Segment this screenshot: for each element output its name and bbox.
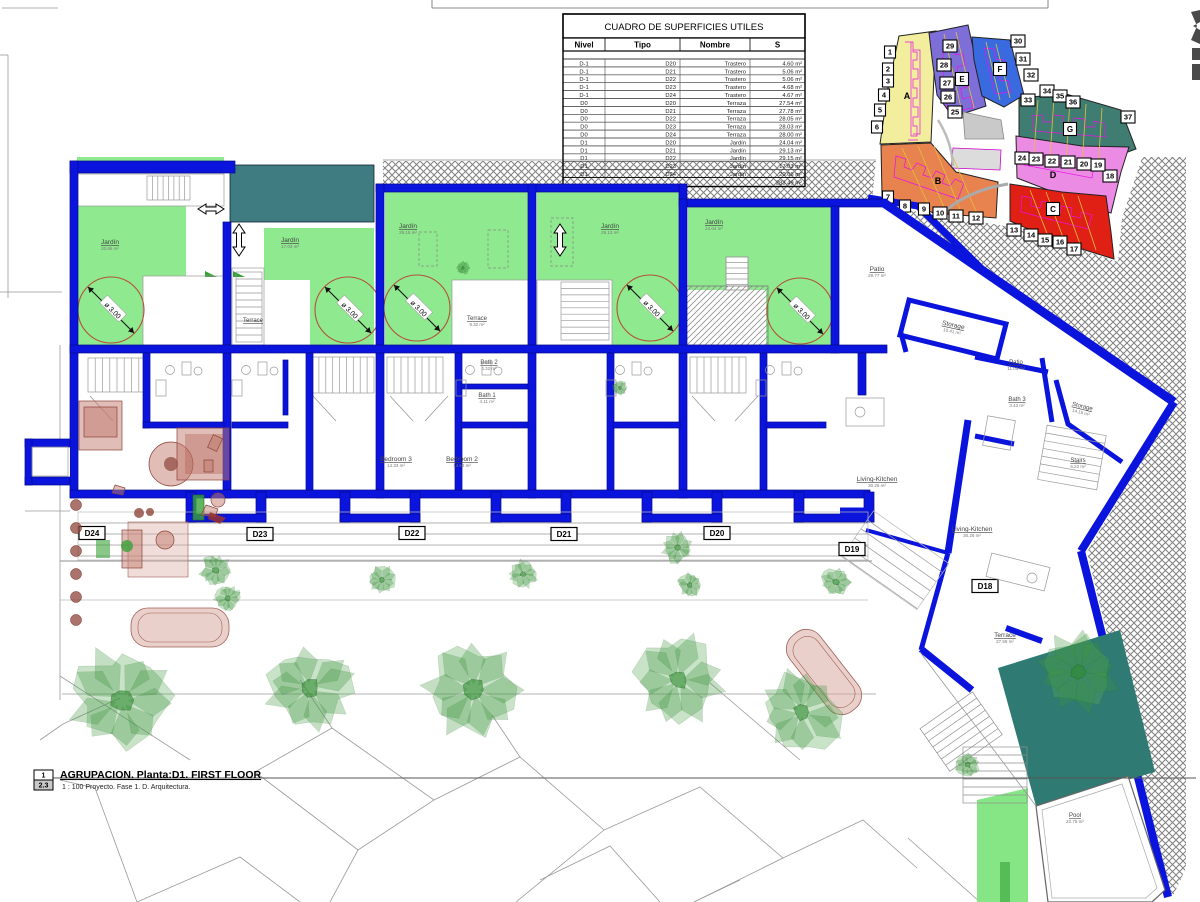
svg-text:30.25 m²: 30.25 m²	[868, 483, 886, 488]
svg-text:Jardín: Jardín	[705, 219, 723, 226]
svg-text:C: C	[1050, 205, 1056, 214]
svg-text:29.13 m²: 29.13 m²	[779, 148, 802, 154]
svg-text:1 : 100 Proyecto. Fase 1. D. A: 1 : 100 Proyecto. Fase 1. D. Arquitectur…	[62, 784, 190, 791]
svg-text:D20: D20	[665, 101, 676, 107]
svg-text:D20: D20	[710, 529, 725, 538]
svg-text:11: 11	[952, 212, 960, 221]
svg-text:29.15 m²: 29.15 m²	[399, 230, 417, 235]
svg-text:Terraza: Terraza	[727, 125, 747, 131]
svg-text:Living-Kitchen: Living-Kitchen	[952, 526, 993, 533]
svg-text:2: 2	[886, 65, 890, 74]
svg-text:14: 14	[1027, 231, 1036, 240]
svg-text:Patio: Patio	[870, 266, 885, 273]
svg-text:D23: D23	[665, 85, 676, 91]
svg-text:AGRUPACION. Planta:D1. FIRST F: AGRUPACION. Planta:D1. FIRST FLOOR	[60, 769, 261, 781]
svg-text:27.54 m²: 27.54 m²	[779, 101, 802, 107]
svg-text:D0: D0	[580, 125, 587, 131]
svg-text:17.03 m²: 17.03 m²	[281, 244, 299, 249]
svg-text:24.04 m²: 24.04 m²	[779, 140, 802, 146]
svg-text:D1: D1	[580, 148, 587, 154]
svg-text:Bedroom 2: Bedroom 2	[446, 456, 478, 463]
svg-text:2.3: 2.3	[39, 783, 49, 790]
svg-text:27: 27	[943, 79, 951, 88]
svg-text:Jardín: Jardín	[399, 223, 417, 230]
svg-text:Tipo: Tipo	[634, 41, 651, 50]
svg-text:D22: D22	[405, 529, 420, 538]
svg-text:34: 34	[1043, 87, 1052, 96]
svg-text:Trastero: Trastero	[725, 77, 746, 83]
svg-text:F: F	[998, 65, 1003, 74]
svg-text:D: D	[1050, 170, 1057, 180]
svg-text:Terraza: Terraza	[727, 109, 747, 115]
svg-text:G: G	[1067, 125, 1073, 134]
svg-text:4.11 m²: 4.11 m²	[480, 399, 495, 404]
svg-text:D1: D1	[580, 156, 587, 162]
svg-text:15: 15	[1041, 236, 1049, 245]
svg-text:24: 24	[1018, 154, 1027, 163]
svg-text:37: 37	[1124, 113, 1132, 122]
svg-text:Trastero: Trastero	[725, 69, 746, 75]
svg-text:D22: D22	[665, 156, 676, 162]
svg-text:26: 26	[944, 93, 952, 102]
svg-text:D24: D24	[85, 529, 100, 538]
svg-text:Trastero: Trastero	[725, 85, 746, 91]
svg-text:D21: D21	[665, 148, 676, 154]
svg-text:Jardín: Jardín	[730, 140, 746, 146]
svg-text:CUADRO DE SUPERFICIES UTILES: CUADRO DE SUPERFICIES UTILES	[605, 22, 764, 33]
svg-text:5: 5	[878, 106, 882, 115]
svg-text:6: 6	[875, 123, 879, 132]
svg-text:19: 19	[1094, 161, 1102, 170]
svg-text:29.77 m²: 29.77 m²	[868, 273, 886, 278]
svg-text:14.33 m²: 14.33 m²	[387, 463, 405, 468]
svg-text:D24: D24	[665, 133, 676, 139]
svg-text:28.00 m²: 28.00 m²	[779, 133, 802, 139]
svg-text:27.59 m²: 27.59 m²	[996, 639, 1014, 644]
svg-text:D-1: D-1	[579, 93, 588, 99]
svg-text:25: 25	[951, 108, 959, 117]
svg-text:D-1: D-1	[579, 85, 588, 91]
svg-text:20.66 m²: 20.66 m²	[101, 246, 119, 251]
svg-text:1: 1	[42, 773, 46, 780]
svg-text:D1: D1	[580, 164, 587, 170]
svg-text:Jardín: Jardín	[281, 237, 299, 244]
svg-text:A: A	[904, 91, 911, 101]
svg-text:27.78 m²: 27.78 m²	[779, 109, 802, 115]
svg-text:1: 1	[888, 48, 892, 57]
svg-text:Jardín: Jardín	[730, 164, 746, 170]
svg-text:4.68 m²: 4.68 m²	[782, 85, 802, 91]
svg-text:16: 16	[1056, 238, 1064, 247]
svg-text:8: 8	[903, 202, 907, 211]
svg-text:Jardín: Jardín	[730, 156, 746, 162]
svg-text:Terrace: Terrace	[243, 318, 264, 324]
svg-text:D21: D21	[665, 109, 676, 115]
svg-text:S: S	[775, 41, 781, 50]
svg-text:10: 10	[936, 209, 944, 218]
svg-text:Terrace: Terrace	[994, 632, 1016, 639]
svg-text:31: 31	[1019, 55, 1027, 64]
svg-text:22.75 m²: 22.75 m²	[1066, 819, 1084, 824]
svg-text:B: B	[935, 176, 942, 186]
svg-text:D23: D23	[665, 125, 676, 131]
svg-text:D24: D24	[665, 93, 676, 99]
svg-text:35: 35	[1056, 92, 1064, 101]
svg-text:11.05 m²: 11.05 m²	[1007, 366, 1025, 371]
svg-text:29.13 m²: 29.13 m²	[601, 230, 619, 235]
svg-text:Nivel: Nivel	[574, 41, 593, 50]
svg-text:28: 28	[940, 61, 948, 70]
svg-text:20: 20	[1080, 160, 1088, 169]
svg-text:4.67 m²: 4.67 m²	[782, 93, 802, 99]
svg-text:D0: D0	[580, 117, 587, 123]
svg-text:Living-Kitchen: Living-Kitchen	[857, 476, 898, 483]
svg-text:D0: D0	[580, 109, 587, 115]
svg-text:E: E	[959, 75, 965, 84]
svg-text:D18: D18	[978, 582, 993, 591]
svg-text:D22: D22	[665, 77, 676, 83]
svg-text:18: 18	[1106, 172, 1114, 181]
svg-text:23: 23	[1032, 155, 1040, 164]
svg-text:Trastero: Trastero	[725, 61, 746, 67]
svg-text:D21: D21	[557, 530, 572, 539]
svg-text:28.05 m²: 28.05 m²	[779, 117, 802, 123]
svg-text:5.06 m²: 5.06 m²	[782, 77, 802, 83]
svg-text:Jardín: Jardín	[730, 148, 746, 154]
svg-text:30: 30	[1014, 37, 1022, 46]
svg-text:D19: D19	[845, 545, 860, 554]
svg-text:Bedroom 3: Bedroom 3	[380, 456, 412, 463]
svg-text:12: 12	[972, 214, 980, 223]
svg-text:D20: D20	[665, 61, 676, 67]
svg-text:D22: D22	[665, 117, 676, 123]
svg-text:3.43 m²: 3.43 m²	[1009, 403, 1025, 408]
svg-text:Terraza: Terraza	[727, 117, 747, 123]
svg-text:22: 22	[1048, 157, 1056, 166]
svg-text:D0: D0	[580, 133, 587, 139]
svg-text:D23: D23	[665, 164, 676, 170]
svg-text:D21: D21	[665, 69, 676, 75]
svg-text:30.25 m²: 30.25 m²	[963, 533, 981, 538]
svg-text:6.22 m²: 6.22 m²	[1070, 464, 1086, 469]
svg-text:33: 33	[1024, 96, 1032, 105]
svg-text:9.32 m²: 9.32 m²	[469, 322, 485, 327]
svg-text:4.60 m²: 4.60 m²	[782, 61, 802, 67]
svg-text:Nombre: Nombre	[700, 41, 731, 50]
svg-text:Terraza: Terraza	[727, 133, 747, 139]
svg-text:14.52 m²: 14.52 m²	[453, 463, 471, 468]
svg-text:D-1: D-1	[579, 77, 588, 83]
svg-text:Trastero: Trastero	[725, 93, 746, 99]
svg-text:283.49 m²: 283.49 m²	[776, 180, 802, 186]
svg-text:Jardín: Jardín	[101, 239, 119, 246]
svg-text:29: 29	[946, 42, 954, 51]
svg-text:D0: D0	[580, 101, 587, 107]
svg-text:36: 36	[1069, 98, 1077, 107]
svg-text:5.06 m²: 5.06 m²	[782, 69, 802, 75]
svg-text:D1: D1	[580, 140, 587, 146]
svg-text:D20: D20	[665, 140, 676, 146]
svg-text:29.15 m²: 29.15 m²	[779, 156, 802, 162]
svg-text:D23: D23	[253, 530, 268, 539]
svg-text:3: 3	[886, 77, 890, 86]
svg-text:21: 21	[1064, 158, 1072, 167]
svg-text:13: 13	[1010, 226, 1018, 235]
svg-text:D-1: D-1	[579, 61, 588, 67]
svg-text:9: 9	[922, 205, 926, 214]
svg-text:17.03 m²: 17.03 m²	[779, 164, 802, 170]
svg-text:32: 32	[1027, 71, 1035, 80]
svg-text:24.04 m²: 24.04 m²	[705, 226, 723, 231]
svg-text:17: 17	[1070, 245, 1078, 254]
svg-text:28.03 m²: 28.03 m²	[779, 125, 802, 131]
svg-text:Jardín: Jardín	[601, 223, 619, 230]
svg-text:D-1: D-1	[579, 69, 588, 75]
svg-text:Terraza: Terraza	[727, 101, 747, 107]
